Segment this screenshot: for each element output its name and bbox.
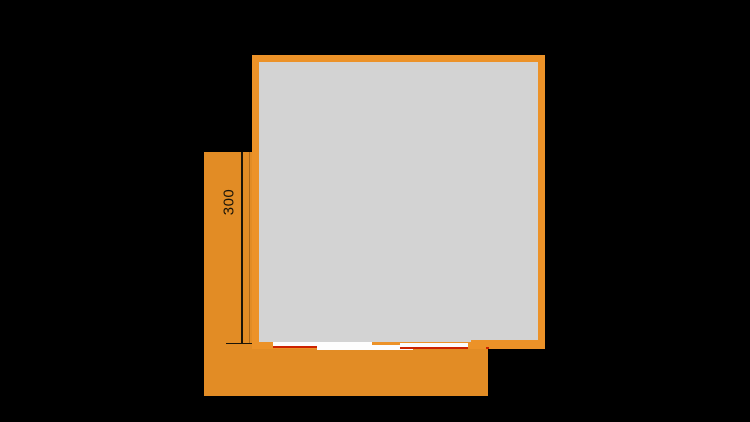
terrace-edge-line [249,152,250,343]
door-rail [273,346,317,347]
terrace-front-section [204,343,488,396]
dimension-label: 300 [221,189,238,216]
door-rail-end [486,347,489,349]
dimension-tick [226,343,252,345]
dimension-line [241,152,243,343]
floor-plan-canvas: 300 [0,0,750,422]
wall-step [471,340,538,343]
door-rail [400,347,468,348]
door-panel [317,345,413,350]
main-room-outline [252,55,545,349]
